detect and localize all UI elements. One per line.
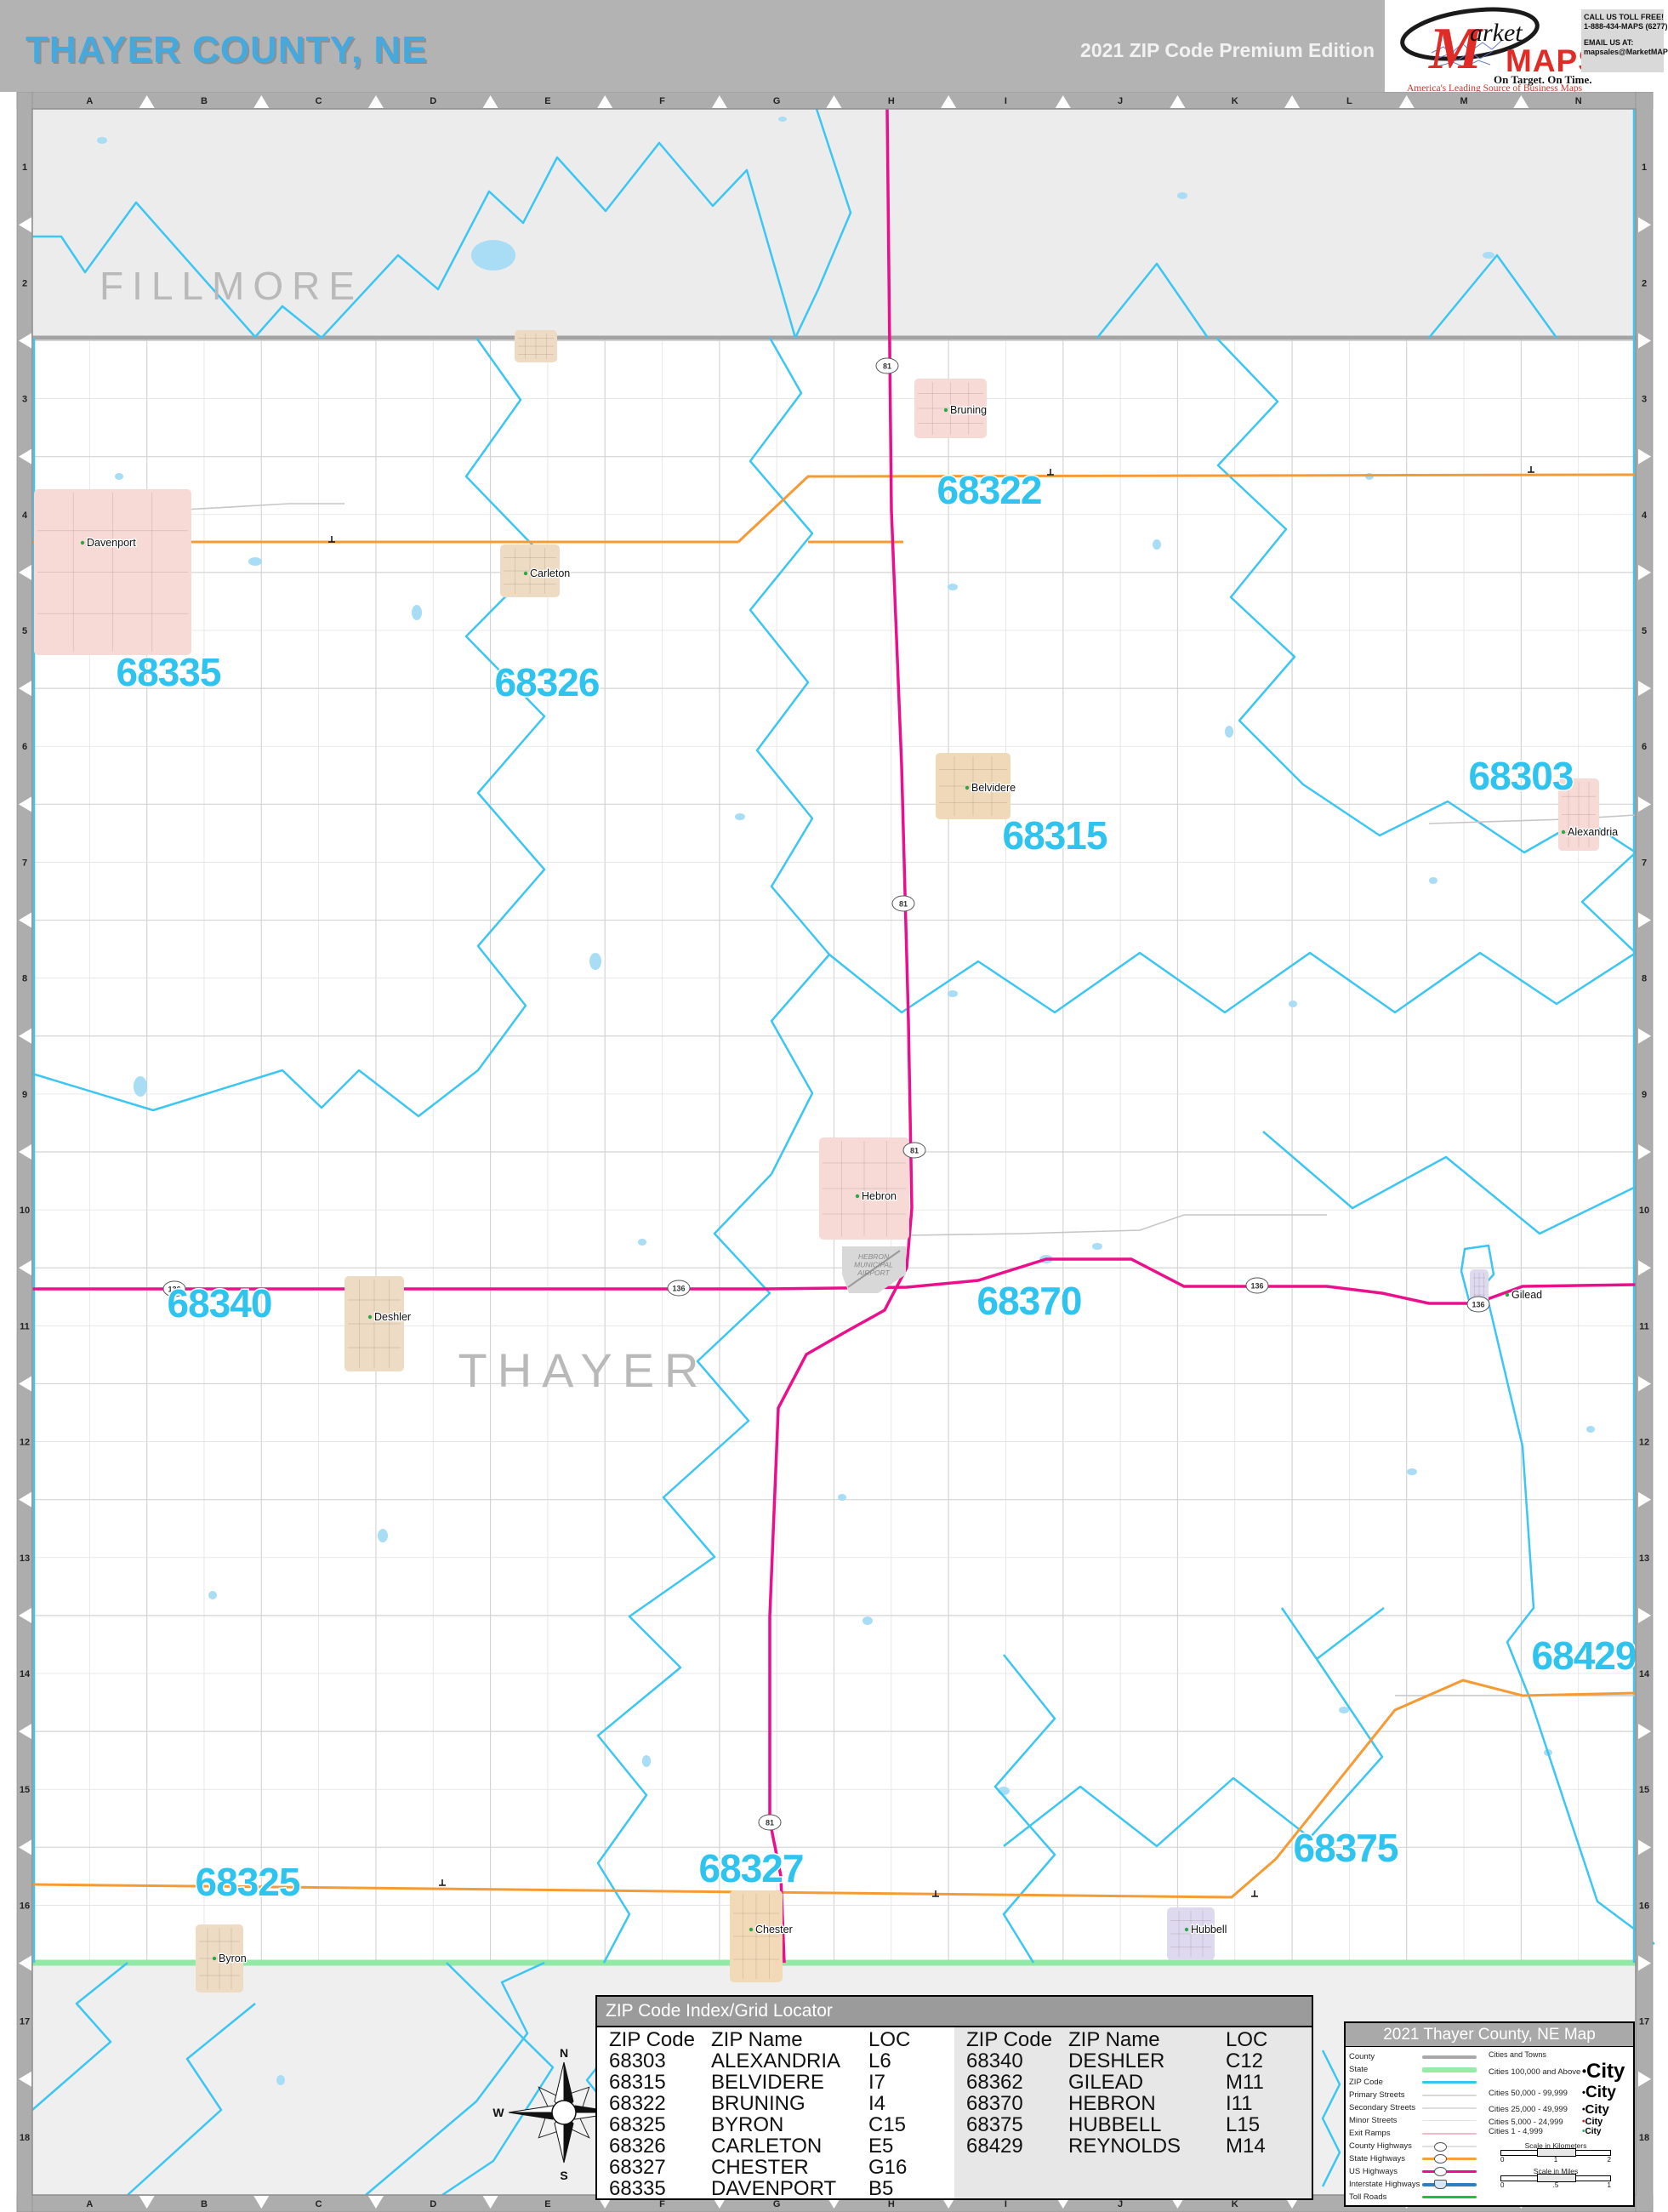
airport-label: HEBRONMUNICIPALAIRPORT bbox=[854, 1252, 893, 1277]
town-label: Chester bbox=[755, 1924, 793, 1935]
zip-code-label: 68370 bbox=[977, 1279, 1082, 1323]
grid-number: 12 bbox=[20, 1438, 30, 1448]
grid-letter: H bbox=[888, 96, 895, 106]
table-row: 68303ALEXANDRIAL6 bbox=[609, 2050, 954, 2072]
grid-letter: A bbox=[86, 96, 93, 106]
svg-text:136: 136 bbox=[672, 1285, 685, 1293]
svg-text:81: 81 bbox=[899, 900, 908, 909]
town-label: Davenport bbox=[87, 537, 136, 549]
grid-number: 15 bbox=[1639, 1785, 1649, 1795]
svg-text:136: 136 bbox=[1472, 1301, 1484, 1309]
legend-road-item: Interstate Highways bbox=[1349, 2178, 1483, 2191]
grid-letter: F bbox=[659, 2199, 665, 2209]
edition-label: 2021 ZIP Code Premium Edition bbox=[1080, 39, 1375, 62]
zip-code-label: 68327 bbox=[699, 1846, 804, 1890]
grid-letter: M bbox=[1460, 96, 1467, 106]
zip-code-label: 68335 bbox=[117, 650, 221, 694]
legend-road-item: Toll Roads bbox=[1349, 2191, 1483, 2203]
legend-road-item: County Highways bbox=[1349, 2140, 1483, 2152]
table-row: 68315BELVIDEREI7 bbox=[609, 2072, 954, 2093]
grid-letter: C bbox=[316, 96, 322, 106]
town-dot bbox=[524, 572, 527, 575]
grid-number: 5 bbox=[22, 626, 27, 636]
col-header-name: ZIP Name bbox=[1068, 2029, 1226, 2050]
town-label: Gilead bbox=[1511, 1289, 1542, 1301]
compass-w: W bbox=[492, 2106, 504, 2119]
grid-number: 13 bbox=[1639, 1554, 1649, 1564]
page-title: THAYER COUNTY, NE bbox=[26, 29, 428, 71]
grid-number: 15 bbox=[20, 1785, 30, 1795]
contact-box: CALL US TOLL FREE! 1-888-434-MAPS (6277)… bbox=[1581, 9, 1664, 72]
grid-number: 9 bbox=[1642, 1090, 1647, 1100]
town-dot bbox=[965, 786, 969, 790]
grid-letter: J bbox=[1118, 96, 1123, 106]
table-row: 68362GILEADM11 bbox=[966, 2072, 1312, 2093]
grid-number: 2 bbox=[22, 278, 27, 288]
col-header-loc: LOC bbox=[1226, 2029, 1294, 2050]
town-label: Alexandria bbox=[1568, 826, 1618, 838]
grid-number: 4 bbox=[1642, 510, 1648, 521]
grid-number: 16 bbox=[1639, 1901, 1649, 1911]
grid-letter: G bbox=[773, 96, 781, 106]
legend-road-item: State bbox=[1349, 2063, 1483, 2076]
town-label: Deshler bbox=[374, 1311, 411, 1323]
zip-code-label: 68340 bbox=[168, 1281, 272, 1325]
town-label: Belvidere bbox=[971, 782, 1016, 794]
zip-index-header-row: ZIP Code ZIP Name LOC bbox=[609, 2029, 954, 2050]
grid-number: 14 bbox=[20, 1669, 31, 1679]
grid-number: 7 bbox=[22, 858, 27, 868]
contact-line2: 1-888-434-MAPS (6277) bbox=[1584, 22, 1661, 31]
legend-road-item: ZIP Code bbox=[1349, 2076, 1483, 2089]
table-row: 68322BRUNINGI4 bbox=[609, 2093, 954, 2114]
town-label: Bruning bbox=[950, 404, 987, 416]
county-map: DavenportBruningCarletonBelvidereAlexand… bbox=[0, 0, 1668, 2212]
legend-city-item: Cities 25,000 - 49,999•City bbox=[1489, 2102, 1631, 2117]
compass-n: N bbox=[560, 2046, 568, 2060]
zip-index-table: ZIP Code Index/Grid Locator ZIP Code ZIP… bbox=[595, 1995, 1313, 2200]
table-row: 68340DESHLERC12 bbox=[966, 2050, 1312, 2072]
legend-road-item: State Highways bbox=[1349, 2152, 1483, 2165]
zip-code-label: 68325 bbox=[196, 1860, 300, 1904]
header-bar: THAYER COUNTY, NE 2021 ZIP Code Premium … bbox=[0, 0, 1668, 92]
town-dot bbox=[1562, 830, 1565, 834]
zip-code-label: 68315 bbox=[1003, 813, 1107, 858]
grid-letter: B bbox=[201, 2199, 208, 2209]
legend-road-items: CountyStateZIP CodePrimary StreetsSecond… bbox=[1349, 2050, 1483, 2203]
county-name-label: FILLMORE bbox=[100, 264, 363, 308]
grid-letter: F bbox=[659, 96, 665, 106]
svg-text:HEBRON: HEBRON bbox=[858, 1252, 890, 1261]
zip-index-title: ZIP Code Index/Grid Locator bbox=[597, 1997, 1312, 2026]
grid-number: 9 bbox=[22, 1090, 27, 1100]
grid-letter: I bbox=[1005, 96, 1007, 106]
svg-text:MUNICIPAL: MUNICIPAL bbox=[854, 1261, 893, 1269]
zip-index-left-column: ZIP Code ZIP Name LOC 68303ALEXANDRIAL66… bbox=[597, 2027, 954, 2198]
grid-number: 11 bbox=[1639, 1321, 1649, 1331]
grid-number: 11 bbox=[20, 1321, 30, 1331]
grid-letter: J bbox=[1118, 2199, 1123, 2209]
grid-number: 4 bbox=[22, 510, 28, 521]
town-dot bbox=[1185, 1928, 1188, 1931]
zip-index-right-rows: 68340DESHLERC1268362GILEADM1168370HEBRON… bbox=[966, 2050, 1312, 2157]
legend-road-item: Secondary Streets bbox=[1349, 2101, 1483, 2114]
zip-index-left-rows: 68303ALEXANDRIAL668315BELVIDEREI768322BR… bbox=[609, 2050, 954, 2199]
legend-city-item: Cities 5,000 - 24,999•City bbox=[1489, 2117, 1631, 2127]
contact-line1: CALL US TOLL FREE! bbox=[1584, 13, 1661, 22]
grid-letter: A bbox=[86, 2199, 93, 2209]
svg-text:136: 136 bbox=[1250, 1282, 1263, 1291]
svg-text:81: 81 bbox=[910, 1147, 919, 1155]
town-dot bbox=[856, 1194, 859, 1198]
scale-bar: Scale in Miles0.51 bbox=[1500, 2167, 1611, 2189]
zip-index-header-row: ZIP Code ZIP Name LOC bbox=[966, 2029, 1312, 2050]
grid-number: 2 bbox=[1642, 278, 1647, 288]
grid-letter: B bbox=[201, 96, 208, 106]
grid-number: 3 bbox=[1642, 395, 1647, 405]
legend-road-item: Exit Ramps bbox=[1349, 2127, 1483, 2140]
scale-bar: Scale in Kilometers012 bbox=[1500, 2141, 1611, 2164]
grid-number: 1 bbox=[1642, 162, 1647, 173]
legend-road-item: County bbox=[1349, 2050, 1483, 2063]
town-label: Hubbell bbox=[1191, 1924, 1227, 1935]
legend-city-items: Cities 100,000 and Above•CityCities 50,0… bbox=[1489, 2060, 1631, 2136]
legend-road-item: US Highways bbox=[1349, 2165, 1483, 2178]
legend-road-item: Minor Streets bbox=[1349, 2114, 1483, 2127]
grid-letter: K bbox=[1232, 96, 1238, 106]
town-dot bbox=[1506, 1293, 1509, 1297]
compass-s: S bbox=[560, 2169, 567, 2182]
grid-number: 6 bbox=[22, 742, 27, 752]
town-label: Carleton bbox=[530, 567, 570, 579]
grid-number: 5 bbox=[1642, 626, 1647, 636]
legend-city-item: Cities 1 - 4,999•City bbox=[1489, 2127, 1631, 2136]
legend-scales: Scale in Kilometers012Scale in Miles0.51 bbox=[1489, 2141, 1631, 2189]
zip-code-label: 68326 bbox=[495, 660, 600, 704]
legend-road-item: Primary Streets bbox=[1349, 2089, 1483, 2101]
marketmaps-logo: M arket MAPS On Target. On Time. America… bbox=[1385, 0, 1668, 92]
svg-text:81: 81 bbox=[883, 362, 891, 371]
grid-number: 16 bbox=[20, 1901, 30, 1911]
contact-line4: mapsales@MarketMAPS.com bbox=[1584, 48, 1661, 57]
contact-line3: EMAIL US AT: bbox=[1584, 38, 1661, 48]
grid-number: 14 bbox=[1639, 1669, 1650, 1679]
grid-number: 8 bbox=[22, 974, 27, 984]
grid-letter: D bbox=[430, 2199, 436, 2209]
zip-code-label: 68429 bbox=[1532, 1633, 1637, 1678]
zip-code-label: 68303 bbox=[1469, 754, 1574, 798]
grid-number: 17 bbox=[1639, 2017, 1649, 2027]
grid-number: 7 bbox=[1642, 858, 1647, 868]
zip-code-label: 68375 bbox=[1294, 1826, 1398, 1870]
town-label: Hebron bbox=[862, 1190, 897, 1202]
grid-letter: H bbox=[888, 2199, 895, 2209]
legend-title: 2021 Thayer County, NE Map bbox=[1346, 2023, 1633, 2046]
svg-text:81: 81 bbox=[766, 1819, 774, 1827]
grid-number: 18 bbox=[1639, 2133, 1649, 2143]
grid-number: 18 bbox=[20, 2133, 30, 2143]
zip-code-label: 68322 bbox=[937, 468, 1042, 512]
grid-number: 12 bbox=[1639, 1438, 1649, 1448]
col-header-loc: LOC bbox=[868, 2029, 936, 2050]
table-row: 68429REYNOLDSM14 bbox=[966, 2135, 1312, 2157]
legend-cities-title: Cities and Towns bbox=[1489, 2050, 1631, 2059]
table-row: 68375HUBBELLL15 bbox=[966, 2114, 1312, 2135]
town-dot bbox=[81, 541, 84, 544]
town-label: Byron bbox=[219, 1953, 247, 1964]
town-dot bbox=[368, 1315, 372, 1319]
grid-number: 1 bbox=[22, 162, 27, 173]
grid-number: 13 bbox=[20, 1554, 30, 1564]
grid-number: 10 bbox=[20, 1206, 30, 1216]
table-row: 68370HEBRONI11 bbox=[966, 2093, 1312, 2114]
legend-city-item: Cities 100,000 and Above•City bbox=[1489, 2060, 1631, 2084]
col-header-zip: ZIP Code bbox=[966, 2029, 1068, 2050]
grid-letter: N bbox=[1575, 96, 1582, 106]
zip-index-right-column: ZIP Code ZIP Name LOC 68340DESHLERC12683… bbox=[954, 2027, 1312, 2198]
grid-letter: I bbox=[1005, 2199, 1007, 2209]
svg-text:AIRPORT: AIRPORT bbox=[857, 1268, 890, 1277]
grid-letter: G bbox=[773, 2199, 781, 2209]
grid-number: 8 bbox=[1642, 974, 1647, 984]
map-legend: 2021 Thayer County, NE Map CountyStateZI… bbox=[1344, 2021, 1635, 2207]
legend-city-item: Cities 50,000 - 99,999•City bbox=[1489, 2084, 1631, 2102]
table-row: 68335DAVENPORTB5 bbox=[609, 2178, 954, 2199]
table-row: 68326CARLETONE5 bbox=[609, 2135, 954, 2157]
table-row: 68325BYRONC15 bbox=[609, 2114, 954, 2135]
grid-number: 17 bbox=[20, 2017, 30, 2027]
town-dot bbox=[944, 408, 948, 412]
col-header-zip: ZIP Code bbox=[609, 2029, 711, 2050]
grid-letter: L bbox=[1346, 96, 1352, 106]
grid-number: 10 bbox=[1639, 1206, 1649, 1216]
grid-number: 3 bbox=[22, 395, 27, 405]
grid-letter: E bbox=[544, 96, 550, 106]
logo-subline: America's Leading Source of Business Map… bbox=[1407, 83, 1583, 92]
grid-letter: K bbox=[1232, 2199, 1238, 2209]
town-dot bbox=[213, 1957, 216, 1960]
grid-number: 6 bbox=[1642, 742, 1647, 752]
col-header-name: ZIP Name bbox=[711, 2029, 868, 2050]
grid-letter: C bbox=[316, 2199, 322, 2209]
grid-letter: E bbox=[544, 2199, 550, 2209]
town-dot bbox=[749, 1928, 753, 1931]
grid-letter: D bbox=[430, 96, 436, 106]
county-name-label: THAYER bbox=[458, 1343, 709, 1397]
table-row: 68327CHESTERG16 bbox=[609, 2157, 954, 2178]
